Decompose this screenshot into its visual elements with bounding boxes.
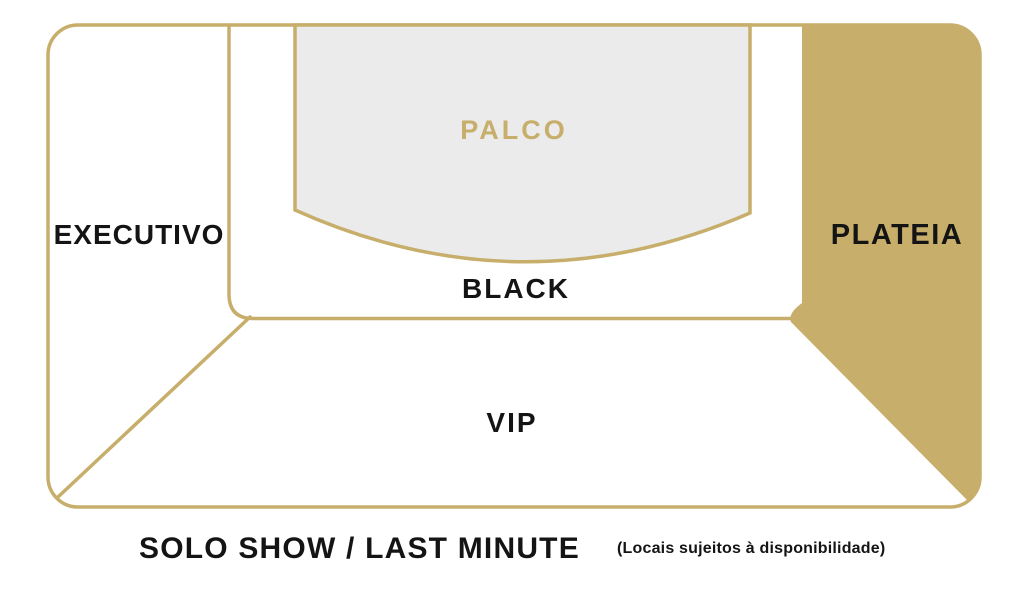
section-label-plateia: PLATEIA bbox=[831, 219, 963, 251]
availability-note: (Locais sujeitos à disponibilidade) bbox=[617, 540, 885, 557]
venue-map: EXECUTIVO PALCO BLACK PLATEIA VIP SOLO S… bbox=[0, 0, 1024, 605]
section-label-executivo: EXECUTIVO bbox=[54, 219, 225, 250]
map-title: SOLO SHOW / LAST MINUTE bbox=[139, 532, 580, 565]
section-label-vip: VIP bbox=[486, 407, 537, 438]
section-label-black: BLACK bbox=[462, 273, 570, 304]
section-label-palco: PALCO bbox=[460, 115, 568, 145]
seating-map-page: EXECUTIVO PALCO BLACK PLATEIA VIP SOLO S… bbox=[0, 0, 1024, 605]
